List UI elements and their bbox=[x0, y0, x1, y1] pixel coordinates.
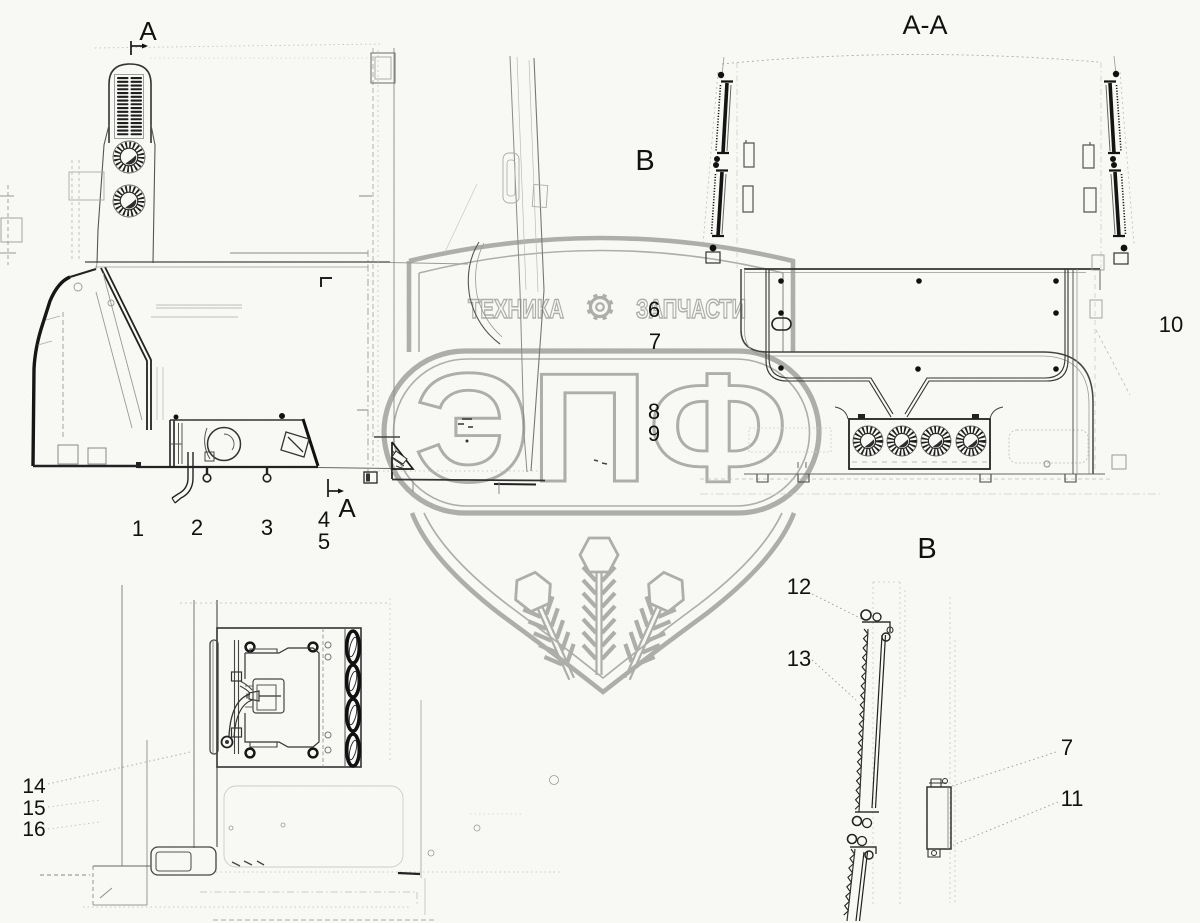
svg-text:A: A bbox=[139, 16, 157, 46]
svg-text:B: B bbox=[917, 533, 936, 565]
svg-text:14: 14 bbox=[22, 775, 46, 798]
svg-text:13: 13 bbox=[787, 646, 811, 671]
svg-text:1: 1 bbox=[132, 516, 144, 541]
svg-text:A: A bbox=[338, 493, 356, 523]
svg-text:6: 6 bbox=[648, 297, 660, 322]
svg-text:15: 15 bbox=[22, 797, 45, 820]
svg-text:B: B bbox=[635, 145, 654, 177]
svg-text:5: 5 bbox=[318, 529, 330, 554]
svg-text:7: 7 bbox=[649, 329, 661, 354]
svg-text:12: 12 bbox=[787, 574, 811, 599]
svg-text:9: 9 bbox=[648, 421, 660, 446]
svg-text:7: 7 bbox=[1061, 735, 1073, 760]
svg-text:16: 16 bbox=[22, 818, 45, 841]
svg-text:10: 10 bbox=[1159, 312, 1183, 337]
svg-text:2: 2 bbox=[191, 515, 203, 540]
svg-text:3: 3 bbox=[261, 515, 273, 540]
svg-text:A-A: A-A bbox=[902, 10, 947, 40]
svg-text:ТЕХНИКА: ТЕХНИКА bbox=[468, 294, 564, 324]
svg-text:11: 11 bbox=[1061, 786, 1084, 811]
